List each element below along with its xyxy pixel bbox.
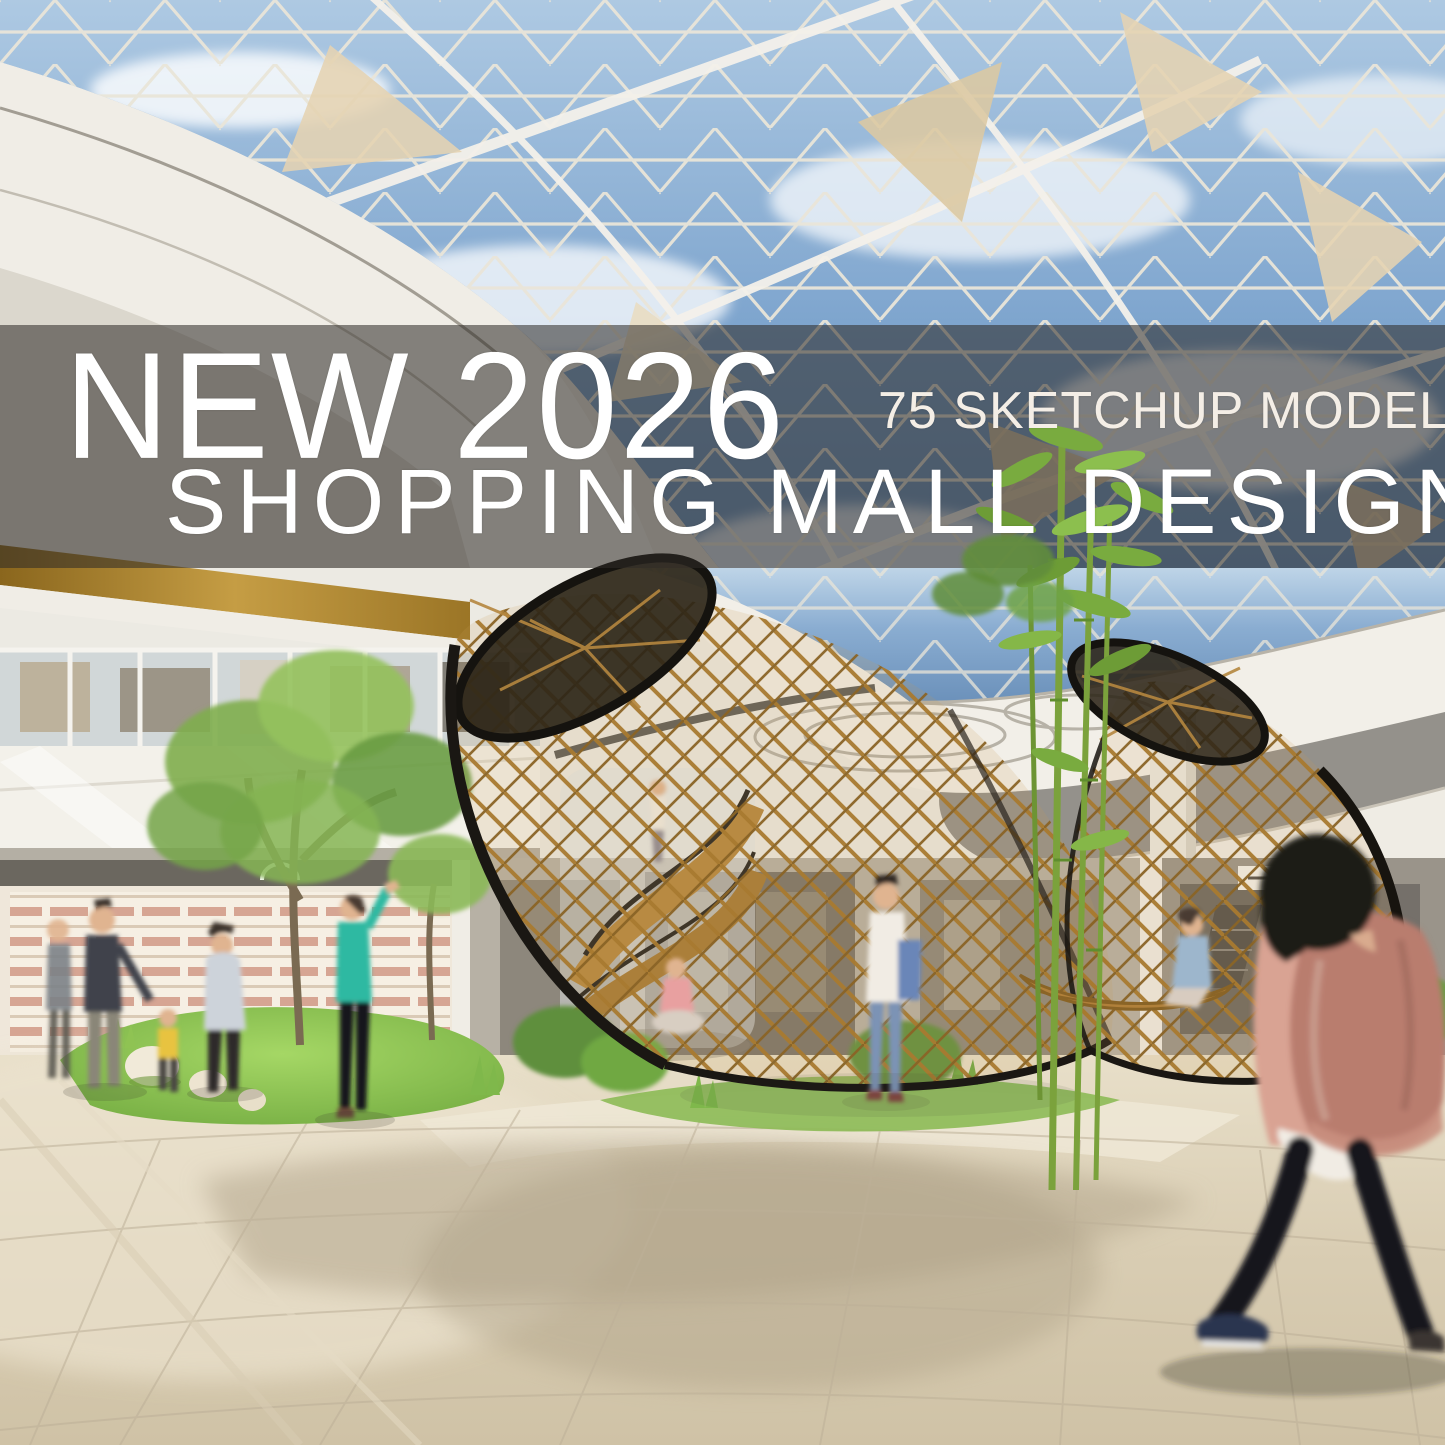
poster-title-line2: SHOPPING MALL DESIGN <box>165 456 1445 548</box>
poster-badge: 75 SKETCHUP MODEL <box>878 385 1445 437</box>
poster: NEW 2026 75 SKETCHUP MODEL SHOPPING MALL… <box>0 0 1445 1445</box>
blue-tote-bag <box>898 940 922 1000</box>
woman-hair-bob <box>1260 834 1376 962</box>
mall-atrium-scene <box>0 0 1445 1445</box>
